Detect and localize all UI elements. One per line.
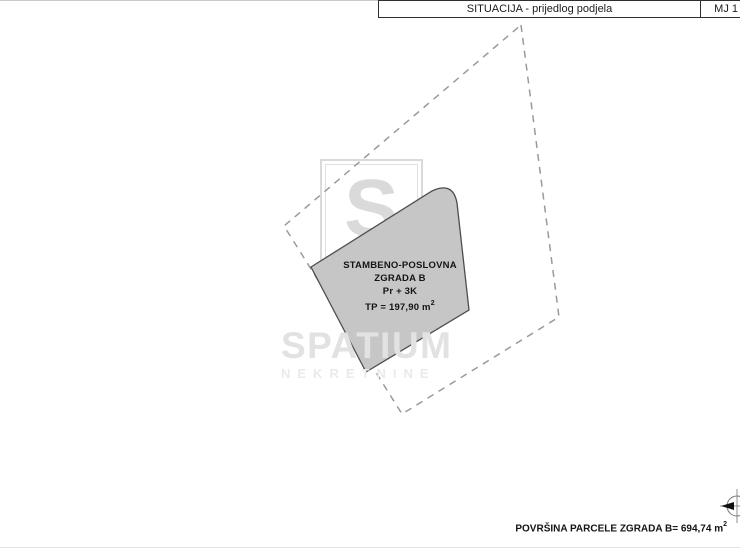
building-area-superscript: 2 (431, 300, 435, 307)
brand-watermark-name: SPATIUM (281, 328, 453, 364)
title-bar: SITUACIJA - prijedlog podjela MJ 1 (378, 0, 740, 18)
site-plan-page: S STAMBENO-POSLOVNA ZGRADA B Pr + 3K TP … (0, 0, 740, 550)
page-title: SITUACIJA - prijedlog podjela (379, 1, 700, 17)
building-name-line1: STAMBENO-POSLOVNA (320, 259, 480, 272)
building-floors: Pr + 3K (320, 285, 480, 298)
building-label: STAMBENO-POSLOVNA ZGRADA B Pr + 3K TP = … (320, 259, 480, 314)
parcel-area-label: POVRŠINA PARCELE ZGRADA B= 694,74 m2 (515, 522, 727, 534)
building-area: TP = 197,90 m2 (320, 298, 480, 314)
brand-watermark-subtitle: NEKRETNINE (281, 366, 453, 381)
scale-label: MJ 1 (700, 1, 740, 17)
parcel-area-superscript: 2 (723, 521, 727, 528)
compass-icon (720, 489, 740, 523)
brand-watermark: SPATIUM NEKRETNINE (281, 328, 453, 381)
building-name-line2: ZGRADA B (320, 272, 480, 285)
